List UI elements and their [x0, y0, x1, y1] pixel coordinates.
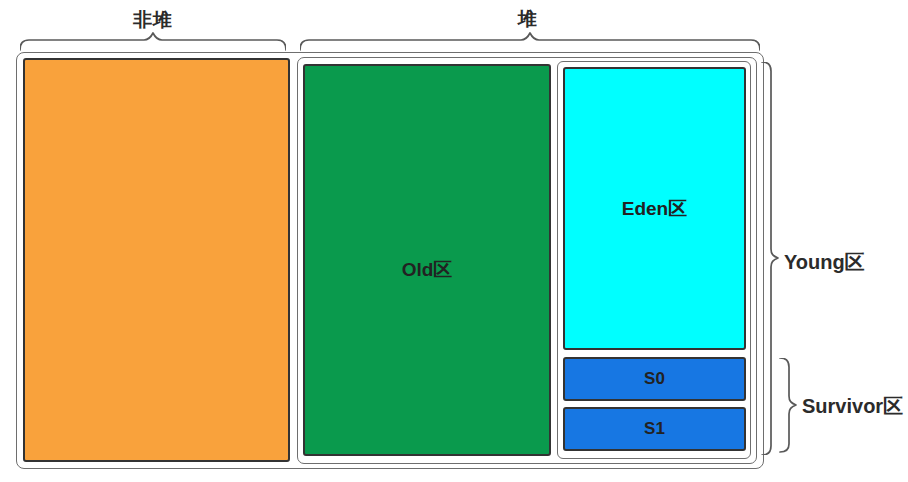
- nonheap-brace-path: [20, 33, 286, 50]
- young-brace-icon: [761, 62, 780, 459]
- eden-region-label: Eden区: [622, 196, 687, 222]
- memory-outer-container: Old区 Eden区 S0 S1: [16, 52, 764, 469]
- heap-title: 堆: [458, 6, 598, 32]
- jvm-memory-diagram: 非堆 堆 Old区 Eden区 S0: [0, 0, 908, 482]
- young-brace-path: [762, 62, 778, 455]
- heap-container: Old区 Eden区 S0 S1: [297, 57, 757, 464]
- old-region: Old区: [303, 64, 551, 456]
- old-region-label: Old区: [402, 257, 453, 283]
- survivor1-region: S1: [563, 407, 746, 451]
- survivor-brace-icon: [779, 358, 798, 457]
- survivor1-region-label: S1: [644, 419, 665, 439]
- survivor-label: Survivor区: [802, 393, 903, 420]
- nonheap-region: [23, 58, 290, 462]
- survivor0-region: S0: [563, 357, 746, 401]
- nonheap-title: 非堆: [83, 7, 223, 33]
- survivor-brace-path: [780, 358, 796, 452]
- heap-brace-path: [300, 33, 760, 50]
- eden-region: Eden区: [563, 67, 746, 350]
- survivor0-region-label: S0: [644, 369, 665, 389]
- young-label: Young区: [784, 249, 865, 276]
- young-container: Eden区 S0 S1: [557, 61, 751, 459]
